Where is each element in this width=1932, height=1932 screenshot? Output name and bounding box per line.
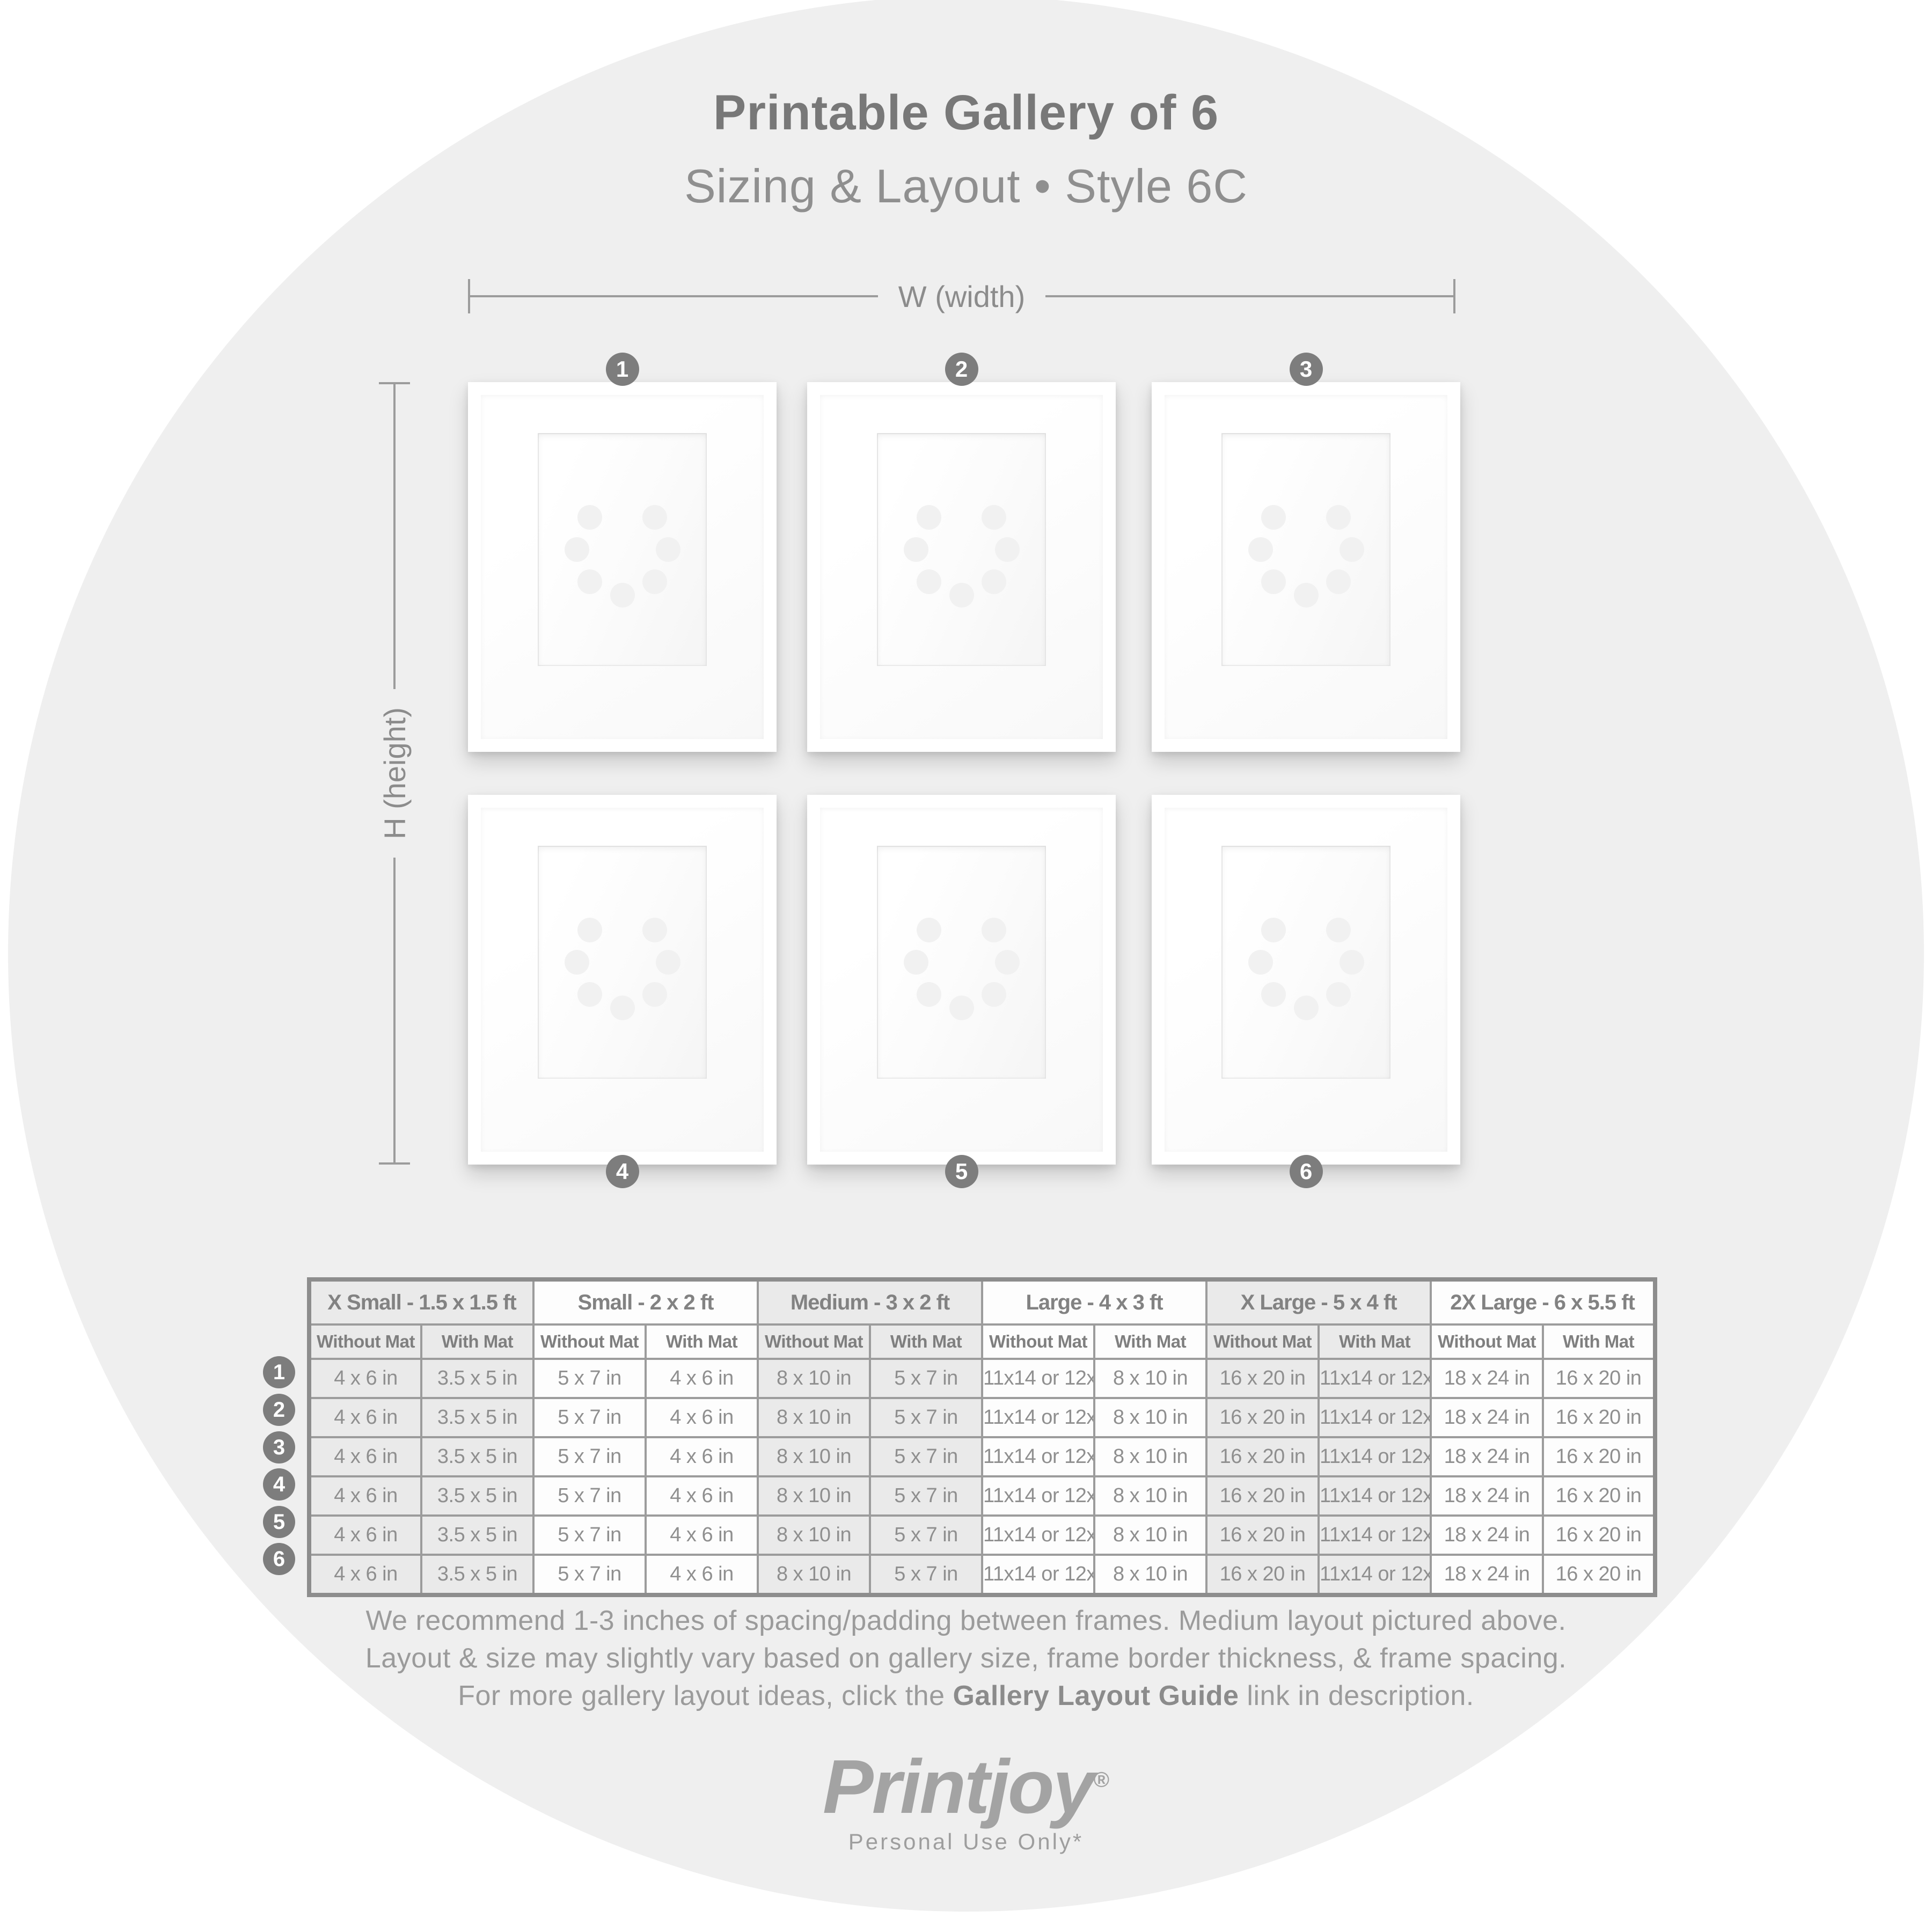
placeholder-dot-icon (995, 537, 1020, 562)
table-row-3: 4 x 6 in3.5 x 5 in5 x 7 in4 x 6 in8 x 10… (309, 1437, 1655, 1476)
size-cell: 16 x 20 in (1206, 1437, 1319, 1476)
size-cell: 5 x 7 in (870, 1555, 982, 1595)
table-row-number-badge-3: 3 (263, 1431, 295, 1463)
placeholder-dot-icon (995, 950, 1020, 975)
size-cell: 4 x 6 in (646, 1437, 758, 1476)
size-cell: 11x14 or 12x16 in (1319, 1437, 1431, 1476)
gallery-frame-1 (468, 382, 777, 752)
size-cell: 5 x 7 in (533, 1476, 646, 1516)
size-cell: 16 x 20 in (1543, 1359, 1655, 1398)
table-row-number-badge-2: 2 (263, 1394, 295, 1426)
size-cell: 3.5 x 5 in (421, 1516, 533, 1555)
placeholder-dot-icon (1294, 996, 1319, 1020)
size-cell: 18 x 24 in (1431, 1437, 1543, 1476)
table-subheader: With Mat (421, 1324, 533, 1359)
size-cell: 11x14 or 12x16 in (1319, 1476, 1431, 1516)
placeholder-dot-icon (917, 505, 941, 530)
footer-line-1: We recommend 1-3 inches of spacing/paddi… (0, 1602, 1932, 1640)
size-cell: 4 x 6 in (309, 1359, 421, 1398)
size-cell: 4 x 6 in (309, 1555, 421, 1595)
placeholder-dot-icon (917, 569, 941, 594)
sizing-table: X Small - 1.5 x 1.5 ftSmall - 2 x 2 ftMe… (307, 1277, 1657, 1597)
size-cell: 5 x 7 in (533, 1516, 646, 1555)
frame-print-placeholder (538, 433, 707, 666)
page-title: Printable Gallery of 6 (0, 85, 1932, 141)
size-cell: 18 x 24 in (1431, 1476, 1543, 1516)
size-cell: 8 x 10 in (1094, 1476, 1206, 1516)
table-group-header-3: Medium - 3 x 2 ft (758, 1279, 982, 1324)
height-dimension-line: H (height) (377, 382, 412, 1165)
width-line-left-segment (470, 295, 878, 297)
width-right-tick (1453, 279, 1455, 313)
table-subheader: Without Mat (1206, 1324, 1319, 1359)
size-cell: 4 x 6 in (309, 1476, 421, 1516)
size-cell: 5 x 7 in (870, 1398, 982, 1437)
size-cell: 18 x 24 in (1431, 1555, 1543, 1595)
size-cell: 11x14 or 12x16 in (1319, 1516, 1431, 1555)
size-cell: 16 x 20 in (1543, 1555, 1655, 1595)
frame-number-badge-6: 6 (1290, 1155, 1323, 1188)
width-label: W (width) (878, 279, 1045, 314)
frame-number-badge-4: 4 (606, 1155, 639, 1188)
size-cell: 16 x 20 in (1543, 1398, 1655, 1437)
placeholder-dot-icon (982, 918, 1006, 942)
placeholder-dot-icon (565, 950, 589, 975)
placeholder-dot-icon (642, 982, 667, 1007)
size-cell: 4 x 6 in (646, 1516, 758, 1555)
size-cell: 11x14 or 12x16 in (982, 1359, 1094, 1398)
placeholder-dot-icon (904, 950, 928, 975)
placeholder-dot-icon (1340, 537, 1364, 562)
size-cell: 5 x 7 in (533, 1359, 646, 1398)
size-cell: 5 x 7 in (533, 1398, 646, 1437)
footer-notes: We recommend 1-3 inches of spacing/paddi… (0, 1602, 1932, 1715)
placeholder-dot-icon (904, 537, 928, 562)
placeholder-dot-icon (949, 996, 974, 1020)
width-line-right-segment (1045, 295, 1453, 297)
table-row-2: 4 x 6 in3.5 x 5 in5 x 7 in4 x 6 in8 x 10… (309, 1398, 1655, 1437)
placeholder-dot-icon (610, 996, 635, 1020)
size-cell: 5 x 7 in (870, 1437, 982, 1476)
table-row-number-badge-1: 1 (263, 1356, 295, 1388)
size-cell: 4 x 6 in (646, 1476, 758, 1516)
size-cell: 4 x 6 in (646, 1359, 758, 1398)
size-cell: 16 x 20 in (1206, 1516, 1319, 1555)
placeholder-dot-icon (1261, 918, 1286, 942)
frame-number-badge-1: 1 (606, 353, 639, 386)
frame-number-badge-2: 2 (945, 353, 978, 386)
registered-mark: ® (1094, 1768, 1109, 1792)
footer-line-2: Layout & size may slightly vary based on… (0, 1640, 1932, 1677)
placeholder-dot-icon (1248, 537, 1273, 562)
frame-print-placeholder (877, 433, 1046, 666)
table-subheader: Without Mat (982, 1324, 1094, 1359)
footer-line-3: For more gallery layout ideas, click the… (0, 1677, 1932, 1715)
placeholder-dot-icon (577, 505, 602, 530)
size-cell: 5 x 7 in (533, 1555, 646, 1595)
license-text: Personal Use Only* (0, 1829, 1932, 1855)
frame-print-placeholder (877, 846, 1046, 1079)
gallery-frame-2 (807, 382, 1116, 752)
size-cell: 8 x 10 in (758, 1476, 870, 1516)
size-cell: 16 x 20 in (1206, 1359, 1319, 1398)
size-cell: 4 x 6 in (309, 1437, 421, 1476)
size-cell: 4 x 6 in (646, 1398, 758, 1437)
table-row-4: 4 x 6 in3.5 x 5 in5 x 7 in4 x 6 in8 x 10… (309, 1476, 1655, 1516)
size-cell: 11x14 or 12x16 in (982, 1437, 1094, 1476)
table-subheader: With Mat (870, 1324, 982, 1359)
frame-number-badge-5: 5 (945, 1155, 978, 1188)
size-cell: 11x14 or 12x16 in (1319, 1398, 1431, 1437)
size-cell: 18 x 24 in (1431, 1359, 1543, 1398)
size-cell: 3.5 x 5 in (421, 1555, 533, 1595)
placeholder-dot-icon (1261, 505, 1286, 530)
frame-print-placeholder (538, 846, 707, 1079)
table-subheader: Without Mat (1431, 1324, 1543, 1359)
size-cell: 5 x 7 in (870, 1516, 982, 1555)
size-cell: 8 x 10 in (1094, 1398, 1206, 1437)
table-group-header-1: X Small - 1.5 x 1.5 ft (309, 1279, 533, 1324)
placeholder-dot-icon (1326, 569, 1351, 594)
placeholder-dot-icon (982, 505, 1006, 530)
frame-print-placeholder (1221, 846, 1391, 1079)
page-subtitle: Sizing & Layout • Style 6C (0, 159, 1932, 214)
table-subheader: Without Mat (309, 1324, 421, 1359)
table-row-number-badge-6: 6 (263, 1543, 295, 1575)
placeholder-dot-icon (1326, 505, 1351, 530)
table-subheader: With Mat (1543, 1324, 1655, 1359)
infographic-canvas: Printable Gallery of 6 Sizing & Layout •… (0, 0, 1932, 1932)
frame-number-badge-3: 3 (1290, 353, 1323, 386)
gallery-frame-3 (1152, 382, 1460, 752)
gallery-frame-5 (807, 795, 1116, 1165)
width-dimension-line: W (width) (468, 279, 1455, 313)
placeholder-dot-icon (656, 537, 680, 562)
size-cell: 11x14 or 12x16 in (982, 1555, 1094, 1595)
height-label: H (height) (377, 689, 412, 858)
placeholder-dot-icon (577, 569, 602, 594)
size-cell: 16 x 20 in (1543, 1516, 1655, 1555)
table-subheader: Without Mat (533, 1324, 646, 1359)
placeholder-dot-icon (1340, 950, 1364, 975)
size-cell: 11x14 or 12x16 in (982, 1516, 1094, 1555)
table-group-header-4: Large - 4 x 3 ft (982, 1279, 1206, 1324)
table-row-number-badge-4: 4 (263, 1468, 295, 1501)
size-cell: 16 x 20 in (1543, 1437, 1655, 1476)
size-cell: 16 x 20 in (1206, 1555, 1319, 1595)
size-cell: 3.5 x 5 in (421, 1476, 533, 1516)
placeholder-dot-icon (1261, 982, 1286, 1007)
printjoy-logo: Printjoy® (0, 1743, 1932, 1831)
placeholder-dot-icon (917, 918, 941, 942)
placeholder-dot-icon (949, 583, 974, 608)
size-cell: 18 x 24 in (1431, 1516, 1543, 1555)
size-cell: 16 x 20 in (1206, 1476, 1319, 1516)
placeholder-dot-icon (577, 918, 602, 942)
placeholder-dot-icon (1326, 982, 1351, 1007)
size-cell: 11x14 or 12x16 in (982, 1398, 1094, 1437)
height-line-top-segment (393, 384, 396, 689)
table-group-header-6: 2X Large - 6 x 5.5 ft (1431, 1279, 1655, 1324)
size-cell: 5 x 7 in (870, 1476, 982, 1516)
size-cell: 8 x 10 in (758, 1516, 870, 1555)
size-cell: 3.5 x 5 in (421, 1359, 533, 1398)
size-cell: 8 x 10 in (1094, 1555, 1206, 1595)
size-cell: 3.5 x 5 in (421, 1398, 533, 1437)
size-cell: 4 x 6 in (309, 1398, 421, 1437)
size-cell: 8 x 10 in (1094, 1359, 1206, 1398)
placeholder-dot-icon (642, 569, 667, 594)
table-row-6: 4 x 6 in3.5 x 5 in5 x 7 in4 x 6 in8 x 10… (309, 1555, 1655, 1595)
size-cell: 4 x 6 in (646, 1555, 758, 1595)
table-row-5: 4 x 6 in3.5 x 5 in5 x 7 in4 x 6 in8 x 10… (309, 1516, 1655, 1555)
table-group-header-5: X Large - 5 x 4 ft (1206, 1279, 1431, 1324)
size-cell: 8 x 10 in (1094, 1516, 1206, 1555)
placeholder-dot-icon (577, 982, 602, 1007)
height-bottom-tick (379, 1162, 410, 1165)
frame-print-placeholder (1221, 433, 1391, 666)
size-cell: 11x14 or 12x16 in (1319, 1555, 1431, 1595)
table-row-1: 4 x 6 in3.5 x 5 in5 x 7 in4 x 6 in8 x 10… (309, 1359, 1655, 1398)
gallery-layout-guide-text: Gallery Layout Guide (953, 1680, 1239, 1711)
table-subheader: With Mat (646, 1324, 758, 1359)
placeholder-dot-icon (1261, 569, 1286, 594)
size-cell: 16 x 20 in (1206, 1398, 1319, 1437)
placeholder-dot-icon (565, 537, 589, 562)
table-row-number-badge-5: 5 (263, 1506, 295, 1538)
size-cell: 11x14 or 12x16 in (982, 1476, 1094, 1516)
size-cell: 18 x 24 in (1431, 1398, 1543, 1437)
height-line-bottom-segment (393, 858, 396, 1162)
placeholder-dot-icon (982, 569, 1006, 594)
table-subheader: Without Mat (758, 1324, 870, 1359)
placeholder-dot-icon (917, 982, 941, 1007)
table-subheader: With Mat (1319, 1324, 1431, 1359)
placeholder-dot-icon (656, 950, 680, 975)
size-cell: 3.5 x 5 in (421, 1437, 533, 1476)
gallery-frame-4 (468, 795, 777, 1165)
size-cell: 5 x 7 in (533, 1437, 646, 1476)
size-cell: 8 x 10 in (758, 1555, 870, 1595)
size-cell: 11x14 or 12x16 in (1319, 1359, 1431, 1398)
size-cell: 5 x 7 in (870, 1359, 982, 1398)
gallery-frame-6 (1152, 795, 1460, 1165)
placeholder-dot-icon (610, 583, 635, 608)
size-cell: 4 x 6 in (309, 1516, 421, 1555)
placeholder-dot-icon (642, 918, 667, 942)
size-cell: 8 x 10 in (758, 1398, 870, 1437)
placeholder-dot-icon (1248, 950, 1273, 975)
placeholder-dot-icon (1294, 583, 1319, 608)
placeholder-dot-icon (1326, 918, 1351, 942)
size-cell: 8 x 10 in (1094, 1437, 1206, 1476)
placeholder-dot-icon (642, 505, 667, 530)
size-cell: 8 x 10 in (758, 1437, 870, 1476)
size-cell: 16 x 20 in (1543, 1476, 1655, 1516)
table-group-header-2: Small - 2 x 2 ft (533, 1279, 758, 1324)
size-cell: 8 x 10 in (758, 1359, 870, 1398)
table-subheader: With Mat (1094, 1324, 1206, 1359)
placeholder-dot-icon (982, 982, 1006, 1007)
